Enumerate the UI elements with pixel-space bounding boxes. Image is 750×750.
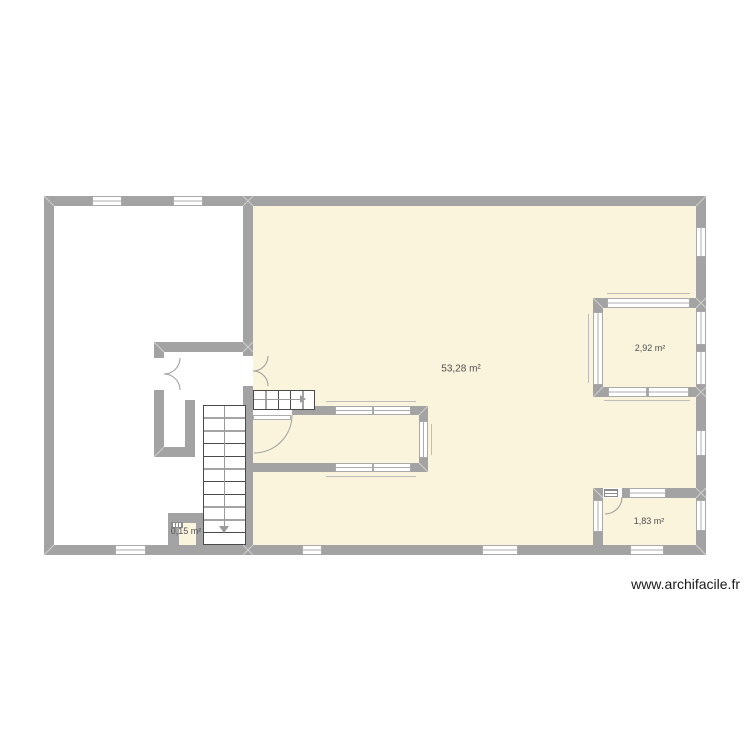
exterior-wall-left[interactable]	[44, 196, 54, 555]
window[interactable]	[608, 387, 647, 397]
window[interactable]	[696, 500, 706, 531]
window[interactable]	[373, 406, 411, 415]
window[interactable]	[696, 311, 706, 345]
hall-wall-inner[interactable]	[185, 400, 195, 457]
window[interactable]	[648, 387, 689, 397]
window[interactable]	[593, 500, 603, 532]
window[interactable]	[696, 430, 706, 456]
staircase-walk-line	[224, 406, 225, 526]
french-door[interactable]	[243, 356, 253, 386]
exterior-wall-top[interactable]	[44, 196, 706, 206]
room-area-label: 1,83 m²	[634, 516, 665, 526]
window[interactable]	[92, 196, 122, 206]
radiator-icon[interactable]	[604, 489, 618, 497]
window[interactable]	[419, 421, 428, 458]
room-area-label: 53,28 m²	[441, 364, 480, 375]
door-leaf	[253, 415, 291, 420]
room-area-label: 0,15 m²	[171, 526, 202, 536]
small-steps-walk-line	[254, 399, 300, 400]
window[interactable]	[173, 196, 203, 206]
window[interactable]	[696, 227, 706, 257]
window[interactable]	[593, 312, 603, 385]
french-door[interactable]	[154, 358, 164, 390]
window[interactable]	[607, 298, 690, 308]
window[interactable]	[335, 406, 373, 415]
stairs-down-arrow-icon	[219, 526, 229, 533]
room-area-label: 2,92 m²	[635, 343, 666, 353]
window[interactable]	[302, 545, 322, 555]
floor-plan: 53,28 m² 2,92 m² 1,83 m² 0,15 m² www.arc…	[0, 0, 750, 750]
hall-wall-top[interactable]	[154, 342, 253, 352]
window[interactable]	[630, 545, 664, 555]
window[interactable]	[335, 463, 373, 472]
window[interactable]	[696, 351, 706, 385]
archifacile-watermark: www.archifacile.fr	[631, 576, 740, 592]
stairs-right-arrow-icon	[300, 395, 306, 403]
window[interactable]	[482, 545, 518, 555]
window[interactable]	[629, 488, 666, 498]
window[interactable]	[373, 463, 411, 472]
window[interactable]	[115, 545, 146, 555]
